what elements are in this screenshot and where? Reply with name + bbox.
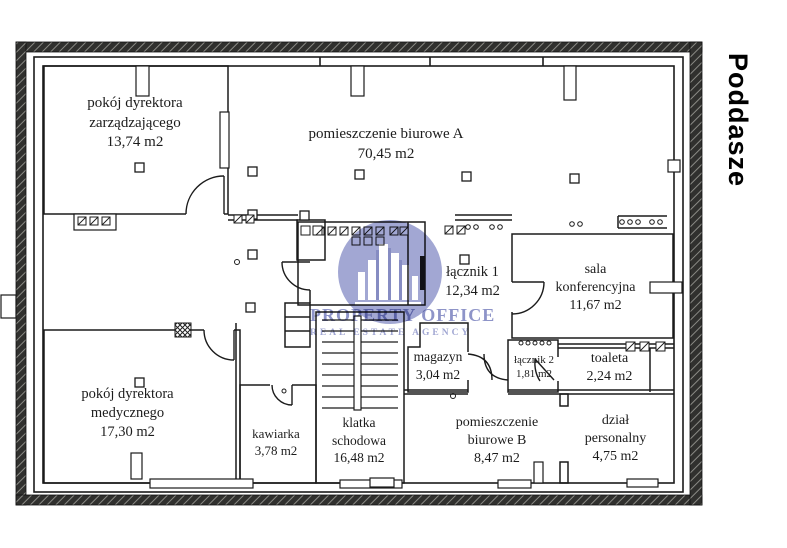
room-label-pokoj-dyrektora-medycznego: pokój dyrektora medycznego 17,30 m2 xyxy=(35,385,220,442)
room-label-pokoj-dyrektora-zarzadzajacego: pokój dyrektora zarządzającego 13,74 m2 xyxy=(40,94,230,153)
shaft-hatched-symbol xyxy=(175,323,191,337)
room-label-klatka-schodowa: klatka schodowa 16,48 m2 xyxy=(317,414,401,467)
floor-title: Poddasze xyxy=(722,53,753,187)
room-label-magazyn: magazyn 3,04 m2 xyxy=(407,348,469,383)
room-label-kawiarka: kawiarka 3,78 m2 xyxy=(241,426,311,460)
floor-plan-page: pokój dyrektora zarządzającego 13,74 m2 … xyxy=(0,0,787,548)
room-label-pomieszczenie-biurowe-a: pomieszczenie biurowe A 70,45 m2 xyxy=(280,125,492,164)
watermark-title: PROPERTY OFFICE xyxy=(310,305,470,326)
room-label-pomieszczenie-biurowe-b: pomieszczenie biurowe B 8,47 m2 xyxy=(438,414,556,469)
room-label-toaleta: toaleta 2,24 m2 xyxy=(562,350,657,386)
room-label-sala-konferencyjna: sala konferencyjna 11,67 m2 xyxy=(538,261,653,316)
room-label-dzial-personalny: dział personalny 4,75 m2 xyxy=(568,412,663,467)
room-label-lacznik-2: łącznik 2 1,81 m2 xyxy=(510,353,558,382)
watermark-subtitle: REAL ESTATE AGENCY xyxy=(310,328,470,338)
